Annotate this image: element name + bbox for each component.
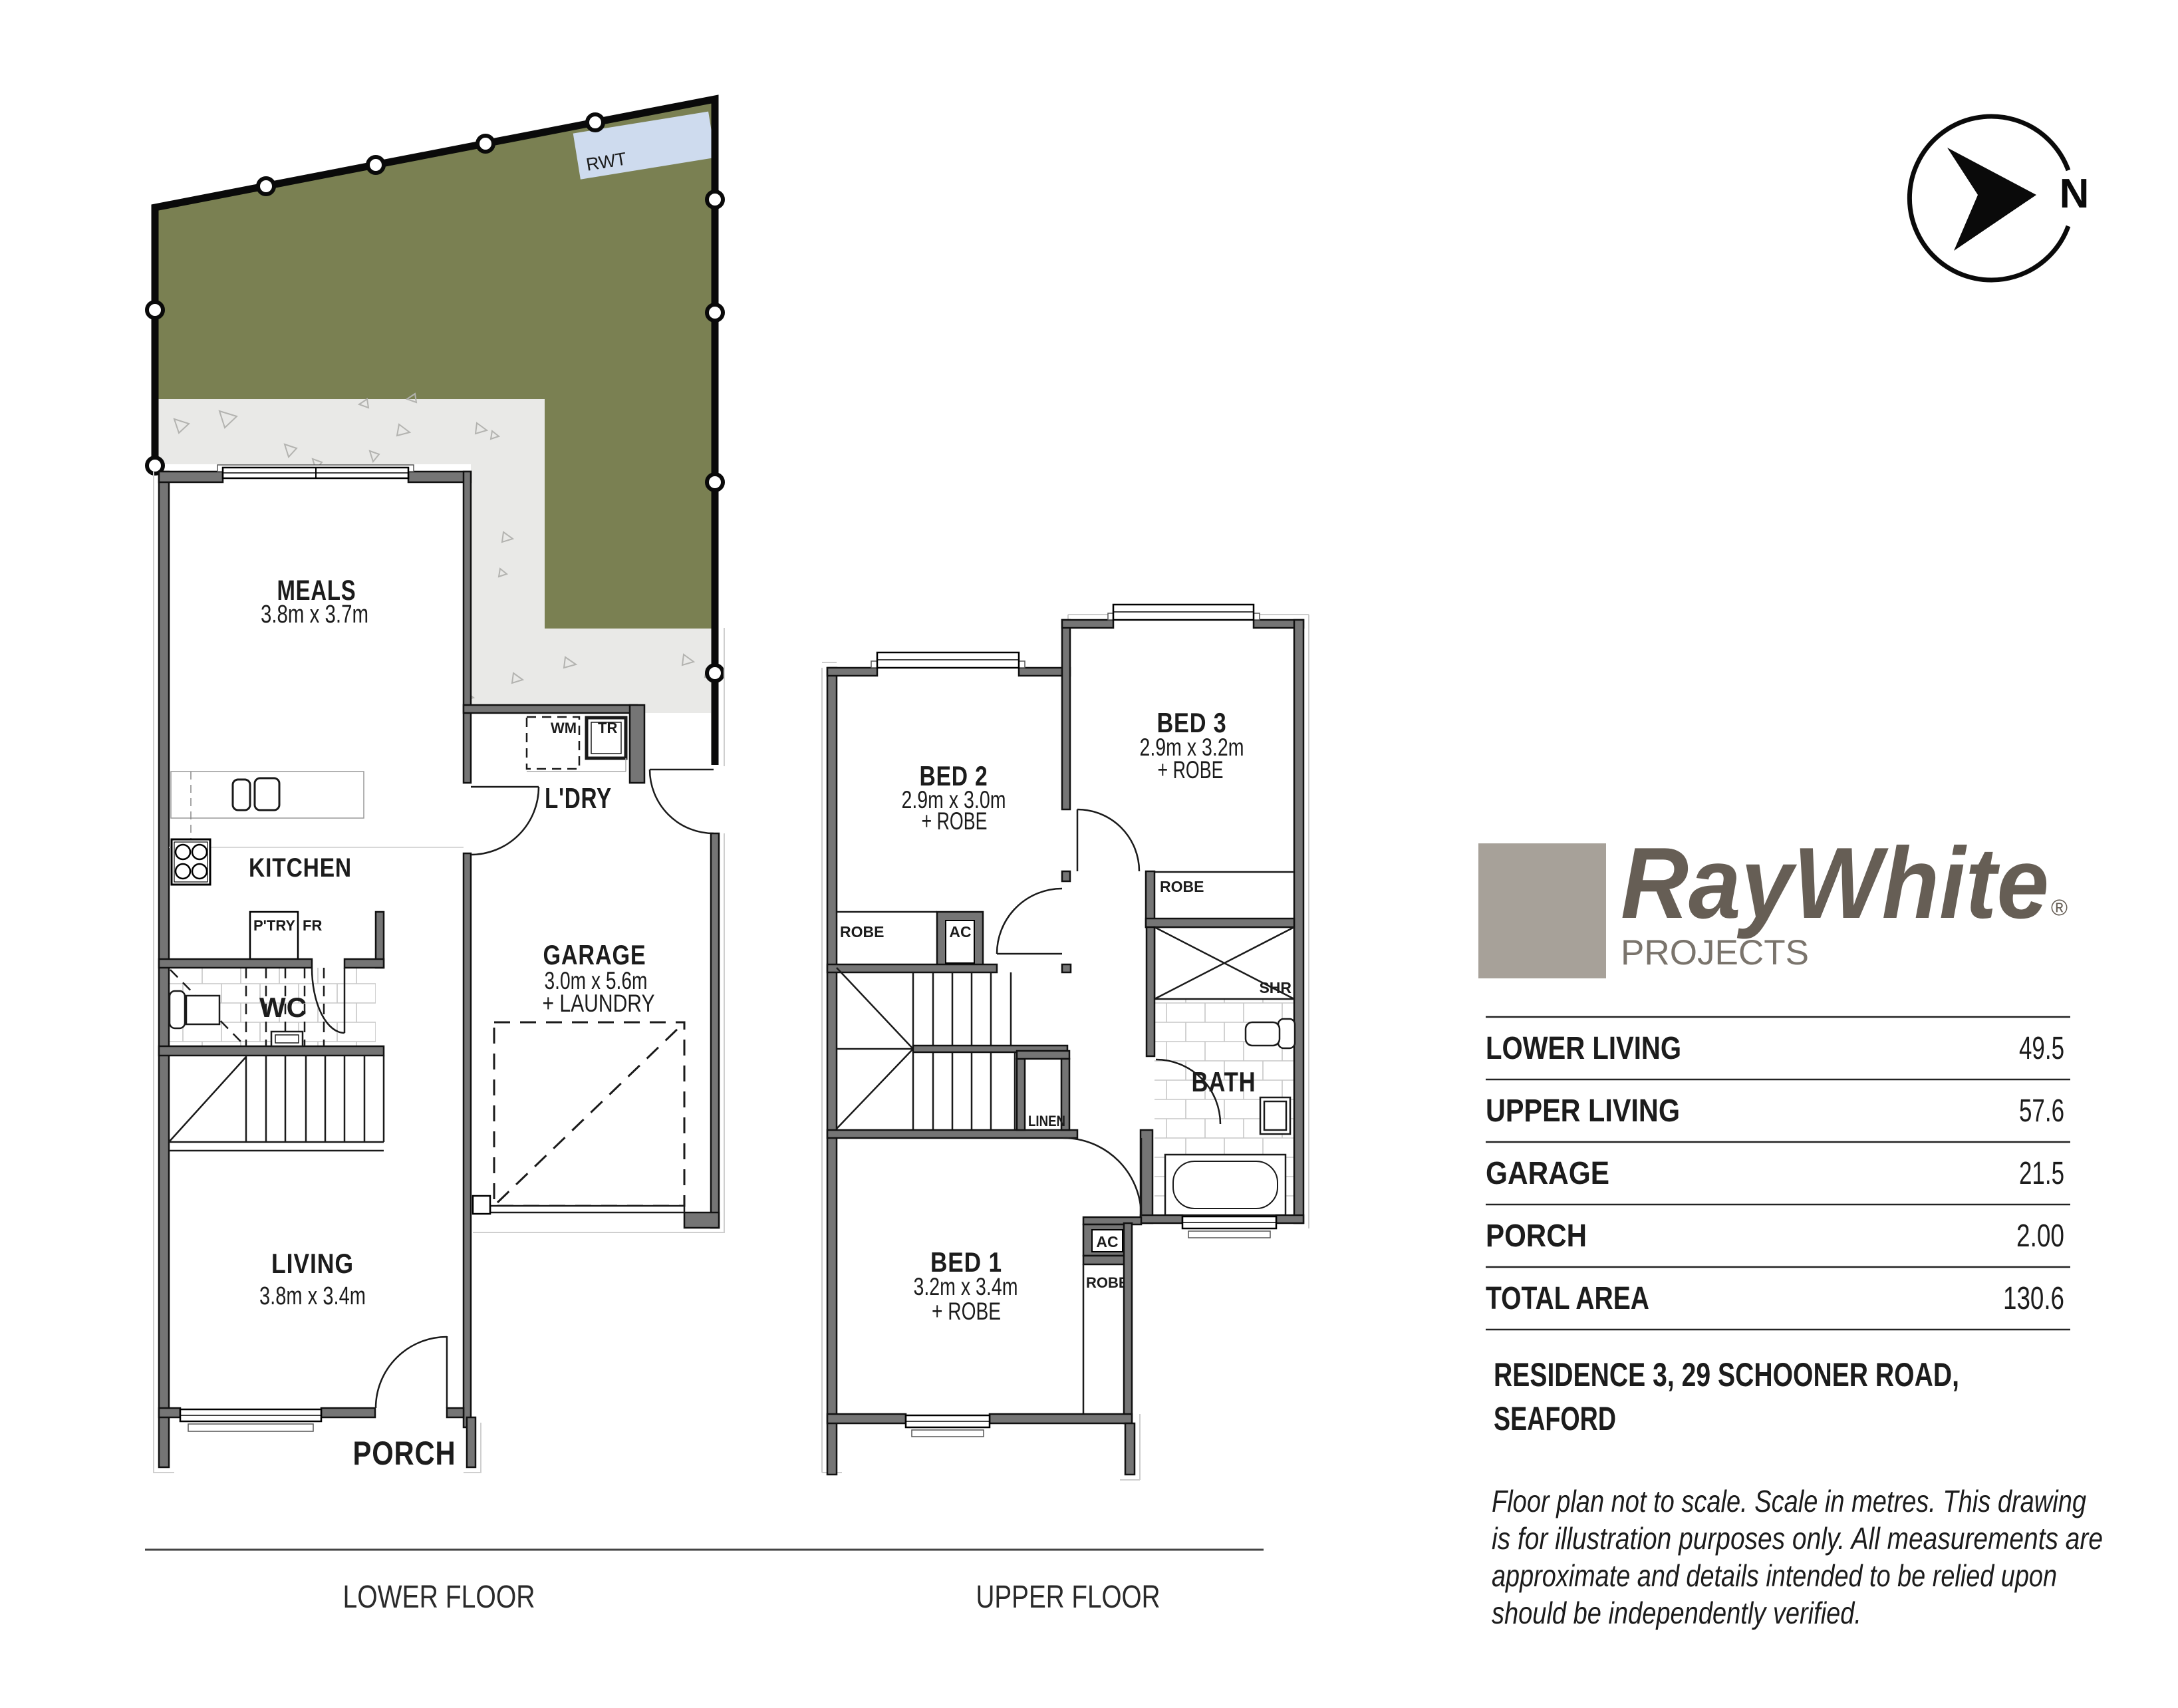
svg-text:3.8m x 3.7m: 3.8m x 3.7m [261,601,368,629]
svg-text:L'DRY: L'DRY [545,782,612,815]
svg-text:3.8m x 3.4m: 3.8m x 3.4m [259,1282,366,1310]
svg-text:21.5: 21.5 [2019,1156,2064,1191]
svg-text:RESIDENCE 3, 29 SCHOONER ROAD,: RESIDENCE 3, 29 SCHOONER ROAD, [1494,1356,1959,1393]
svg-text:WM: WM [551,720,577,736]
svg-text:+ ROBE: + ROBE [922,807,988,835]
svg-text:SEAFORD: SEAFORD [1494,1400,1616,1437]
svg-text:®: ® [2051,895,2068,921]
svg-text:130.6: 130.6 [2003,1281,2064,1316]
svg-text:Floor plan not to scale. Scale: Floor plan not to scale. Scale in metres… [1492,1484,2086,1518]
svg-text:ROBE: ROBE [1160,878,1204,895]
svg-text:GARAGE: GARAGE [543,939,646,970]
svg-text:BATH: BATH [1192,1066,1256,1097]
svg-text:approximate and details intend: approximate and details intended to be r… [1492,1558,2057,1593]
svg-text:AC: AC [949,923,971,940]
svg-text:LINEN: LINEN [1028,1113,1065,1129]
svg-text:ROBE: ROBE [840,923,884,940]
svg-text:WC: WC [259,992,307,1023]
svg-text:LOWER FLOOR: LOWER FLOOR [343,1580,535,1615]
svg-text:PORCH: PORCH [353,1435,456,1472]
svg-text:+ ROBE: + ROBE [1158,756,1224,783]
svg-text:49.5: 49.5 [2019,1031,2064,1066]
svg-text:+ ROBE: + ROBE [932,1298,1001,1325]
svg-text:SHR: SHR [1259,979,1292,996]
svg-text:UPPER LIVING: UPPER LIVING [1486,1093,1680,1129]
svg-text:3.2m x 3.4m: 3.2m x 3.4m [914,1273,1018,1300]
svg-text:should be independently verifi: should be independently verified. [1492,1596,1861,1630]
svg-text:2.00: 2.00 [2016,1218,2064,1254]
svg-text:TR: TR [598,720,617,736]
svg-text:P'TRY: P'TRY [253,917,295,934]
svg-text:TOTAL AREA: TOTAL AREA [1486,1281,1649,1316]
svg-text:KITCHEN: KITCHEN [249,853,352,883]
svg-text:UPPER FLOOR: UPPER FLOOR [976,1580,1160,1615]
svg-text:AC: AC [1096,1233,1118,1250]
svg-text:+ LAUNDRY: + LAUNDRY [543,990,655,1017]
svg-text:RayWhite: RayWhite [1621,827,2049,940]
svg-text:ROBE: ROBE [1086,1274,1129,1291]
svg-text:PORCH: PORCH [1486,1218,1587,1254]
svg-text:FR: FR [303,917,322,934]
svg-text:PROJECTS: PROJECTS [1621,933,1809,972]
svg-text:GARAGE: GARAGE [1486,1156,1609,1191]
svg-text:57.6: 57.6 [2019,1093,2064,1129]
svg-text:N: N [2060,171,2090,217]
svg-text:is for illustration purposes o: is for illustration purposes only. All m… [1492,1521,2103,1556]
svg-text:LIVING: LIVING [271,1248,354,1279]
svg-text:LOWER LIVING: LOWER LIVING [1486,1031,1681,1066]
